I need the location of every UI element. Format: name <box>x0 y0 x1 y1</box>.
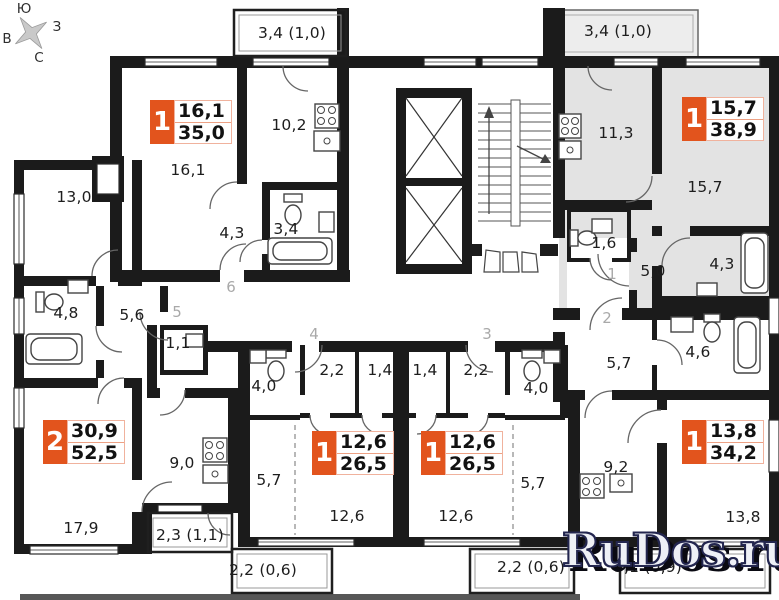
floor-plan-drawing <box>0 0 779 600</box>
compass-north-label: С <box>34 50 43 66</box>
compass-rose: Ю З С В <box>0 0 72 72</box>
floor-plan-page: Ю З С В 3,4 (1,0)3,4 (1,0)16,110,211,315… <box>0 0 779 600</box>
compass-east-label: В <box>2 31 11 47</box>
compass-south-label: Ю <box>17 1 32 17</box>
watermark: RuDos.ru <box>562 523 779 577</box>
compass-west-label: З <box>53 19 62 35</box>
